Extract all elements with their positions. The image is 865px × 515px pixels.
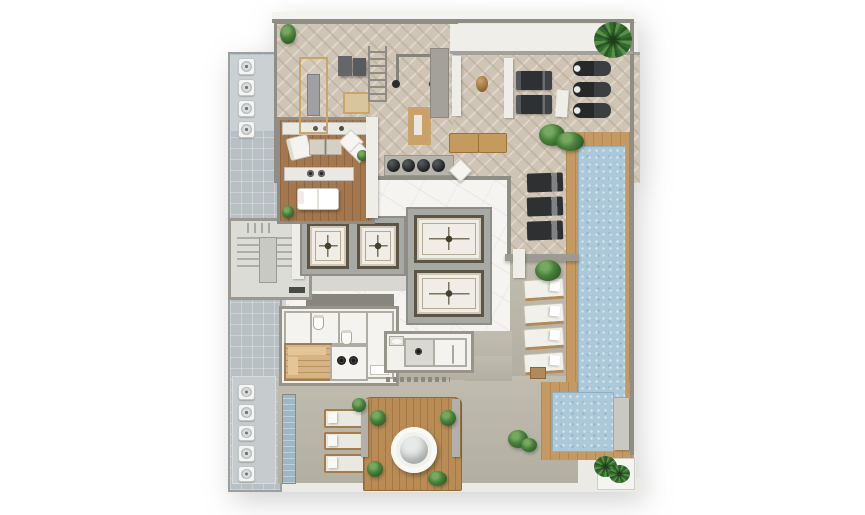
lap-pool-water — [578, 146, 626, 398]
spin-bike-zone — [573, 61, 614, 121]
fan — [238, 58, 255, 75]
toilet — [313, 315, 324, 330]
shower-drain — [349, 356, 358, 365]
counter-appliance — [339, 126, 344, 131]
jacuzzi-basin — [400, 436, 428, 464]
shower-room — [404, 338, 435, 367]
fan — [238, 121, 255, 138]
gym-mat — [555, 90, 569, 118]
plant — [440, 410, 456, 426]
lounger-pool — [523, 327, 564, 350]
weight-machine — [353, 58, 366, 76]
treadmill — [516, 95, 552, 114]
toilet — [341, 330, 352, 345]
toilet — [452, 345, 454, 364]
lounger-dark — [527, 196, 564, 216]
bike — [573, 61, 611, 76]
kettlebell — [402, 159, 415, 172]
faucet-icon — [318, 170, 325, 177]
stool — [309, 139, 325, 155]
cable-weight-stack — [392, 80, 400, 88]
plant — [428, 471, 447, 486]
punching-bag — [476, 76, 488, 92]
bike — [573, 103, 611, 118]
bike — [573, 82, 611, 97]
pool-side-slab — [614, 398, 629, 450]
plant — [535, 260, 561, 281]
fan — [238, 425, 255, 441]
elevator-bank-left — [300, 216, 406, 276]
storage-wall — [430, 48, 449, 118]
gym-bench-white — [513, 249, 525, 278]
terrace-lounger-row — [324, 409, 365, 473]
wall-right — [630, 19, 634, 455]
fan — [238, 466, 255, 482]
amenities-floor-plan — [0, 0, 865, 515]
upholstered-bench — [449, 133, 479, 153]
stair-landing-divider — [259, 237, 277, 283]
sauna — [284, 343, 332, 381]
lounger-terrace — [324, 454, 367, 473]
shower-drain — [337, 356, 346, 365]
stair-bench — [289, 287, 305, 293]
relax-lounger-zone — [527, 173, 565, 245]
lap-pool-water-wide-end — [552, 392, 614, 452]
pool-side-table — [530, 367, 546, 379]
jacuzzi — [391, 427, 437, 473]
shower-drain — [415, 348, 422, 355]
fan — [238, 79, 255, 96]
palm-plant — [609, 465, 630, 483]
elevator-bank-center — [406, 207, 492, 325]
kneeling-bench — [408, 107, 431, 145]
sauna-bench — [288, 347, 326, 355]
kettlebell — [387, 159, 400, 172]
elev-car — [357, 223, 399, 269]
lounger-pool — [523, 302, 564, 325]
sauna-bench — [288, 357, 298, 375]
vent-fans-top — [238, 58, 255, 138]
elev-car — [307, 223, 349, 269]
wc-room — [284, 311, 312, 345]
gym-bench — [343, 92, 370, 114]
weight-rack — [299, 57, 328, 134]
rack-bench-pad — [307, 74, 320, 116]
plant — [370, 410, 386, 426]
elev-car — [414, 270, 484, 318]
suite-shelf-wall — [366, 117, 378, 218]
plant — [352, 398, 366, 412]
wall-lobby-top — [376, 176, 510, 180]
changing-rooms-block — [279, 306, 399, 386]
stair-rails — [247, 223, 275, 233]
pool-lounger-row — [524, 279, 567, 373]
treadmill-zone — [516, 71, 554, 115]
plant — [521, 438, 537, 452]
wall-bars — [368, 46, 387, 102]
wall-top — [272, 19, 634, 23]
gym-pillar — [504, 58, 513, 118]
faucet-icon — [307, 170, 314, 177]
vent-fans-bottom — [238, 384, 255, 482]
fan — [238, 404, 255, 420]
lounger-dark — [527, 220, 564, 240]
gym-pillar — [452, 56, 461, 116]
pool-wc-block — [384, 331, 474, 373]
plant — [556, 132, 584, 151]
elev-car — [414, 215, 484, 263]
deck-post — [452, 399, 460, 457]
weight-machine — [338, 56, 352, 76]
floor-plan-screenshot — [0, 0, 865, 515]
stepping-stones — [386, 377, 450, 382]
upholstered-bench — [478, 133, 507, 153]
fan — [238, 384, 255, 400]
plant — [367, 461, 383, 477]
palm-plant — [594, 22, 632, 58]
massage-plant — [282, 206, 294, 218]
kettlebell — [417, 159, 430, 172]
fan — [238, 100, 255, 117]
kettlebell — [432, 159, 445, 172]
plant — [280, 24, 296, 44]
cable-station-bar — [396, 54, 433, 57]
kettlebell-shelf — [384, 155, 454, 176]
treadmill — [516, 71, 552, 90]
massage-room-counter — [284, 167, 354, 181]
water-feature — [282, 394, 296, 484]
sink — [389, 336, 404, 346]
lounger-dark — [527, 172, 564, 192]
lounger-pool — [523, 278, 564, 301]
wc-room — [433, 338, 467, 367]
wall-lobby-right — [507, 176, 511, 260]
massage-pillow — [298, 191, 304, 204]
bench-pad — [414, 115, 422, 135]
shower-room — [330, 345, 368, 381]
fan — [238, 445, 255, 461]
